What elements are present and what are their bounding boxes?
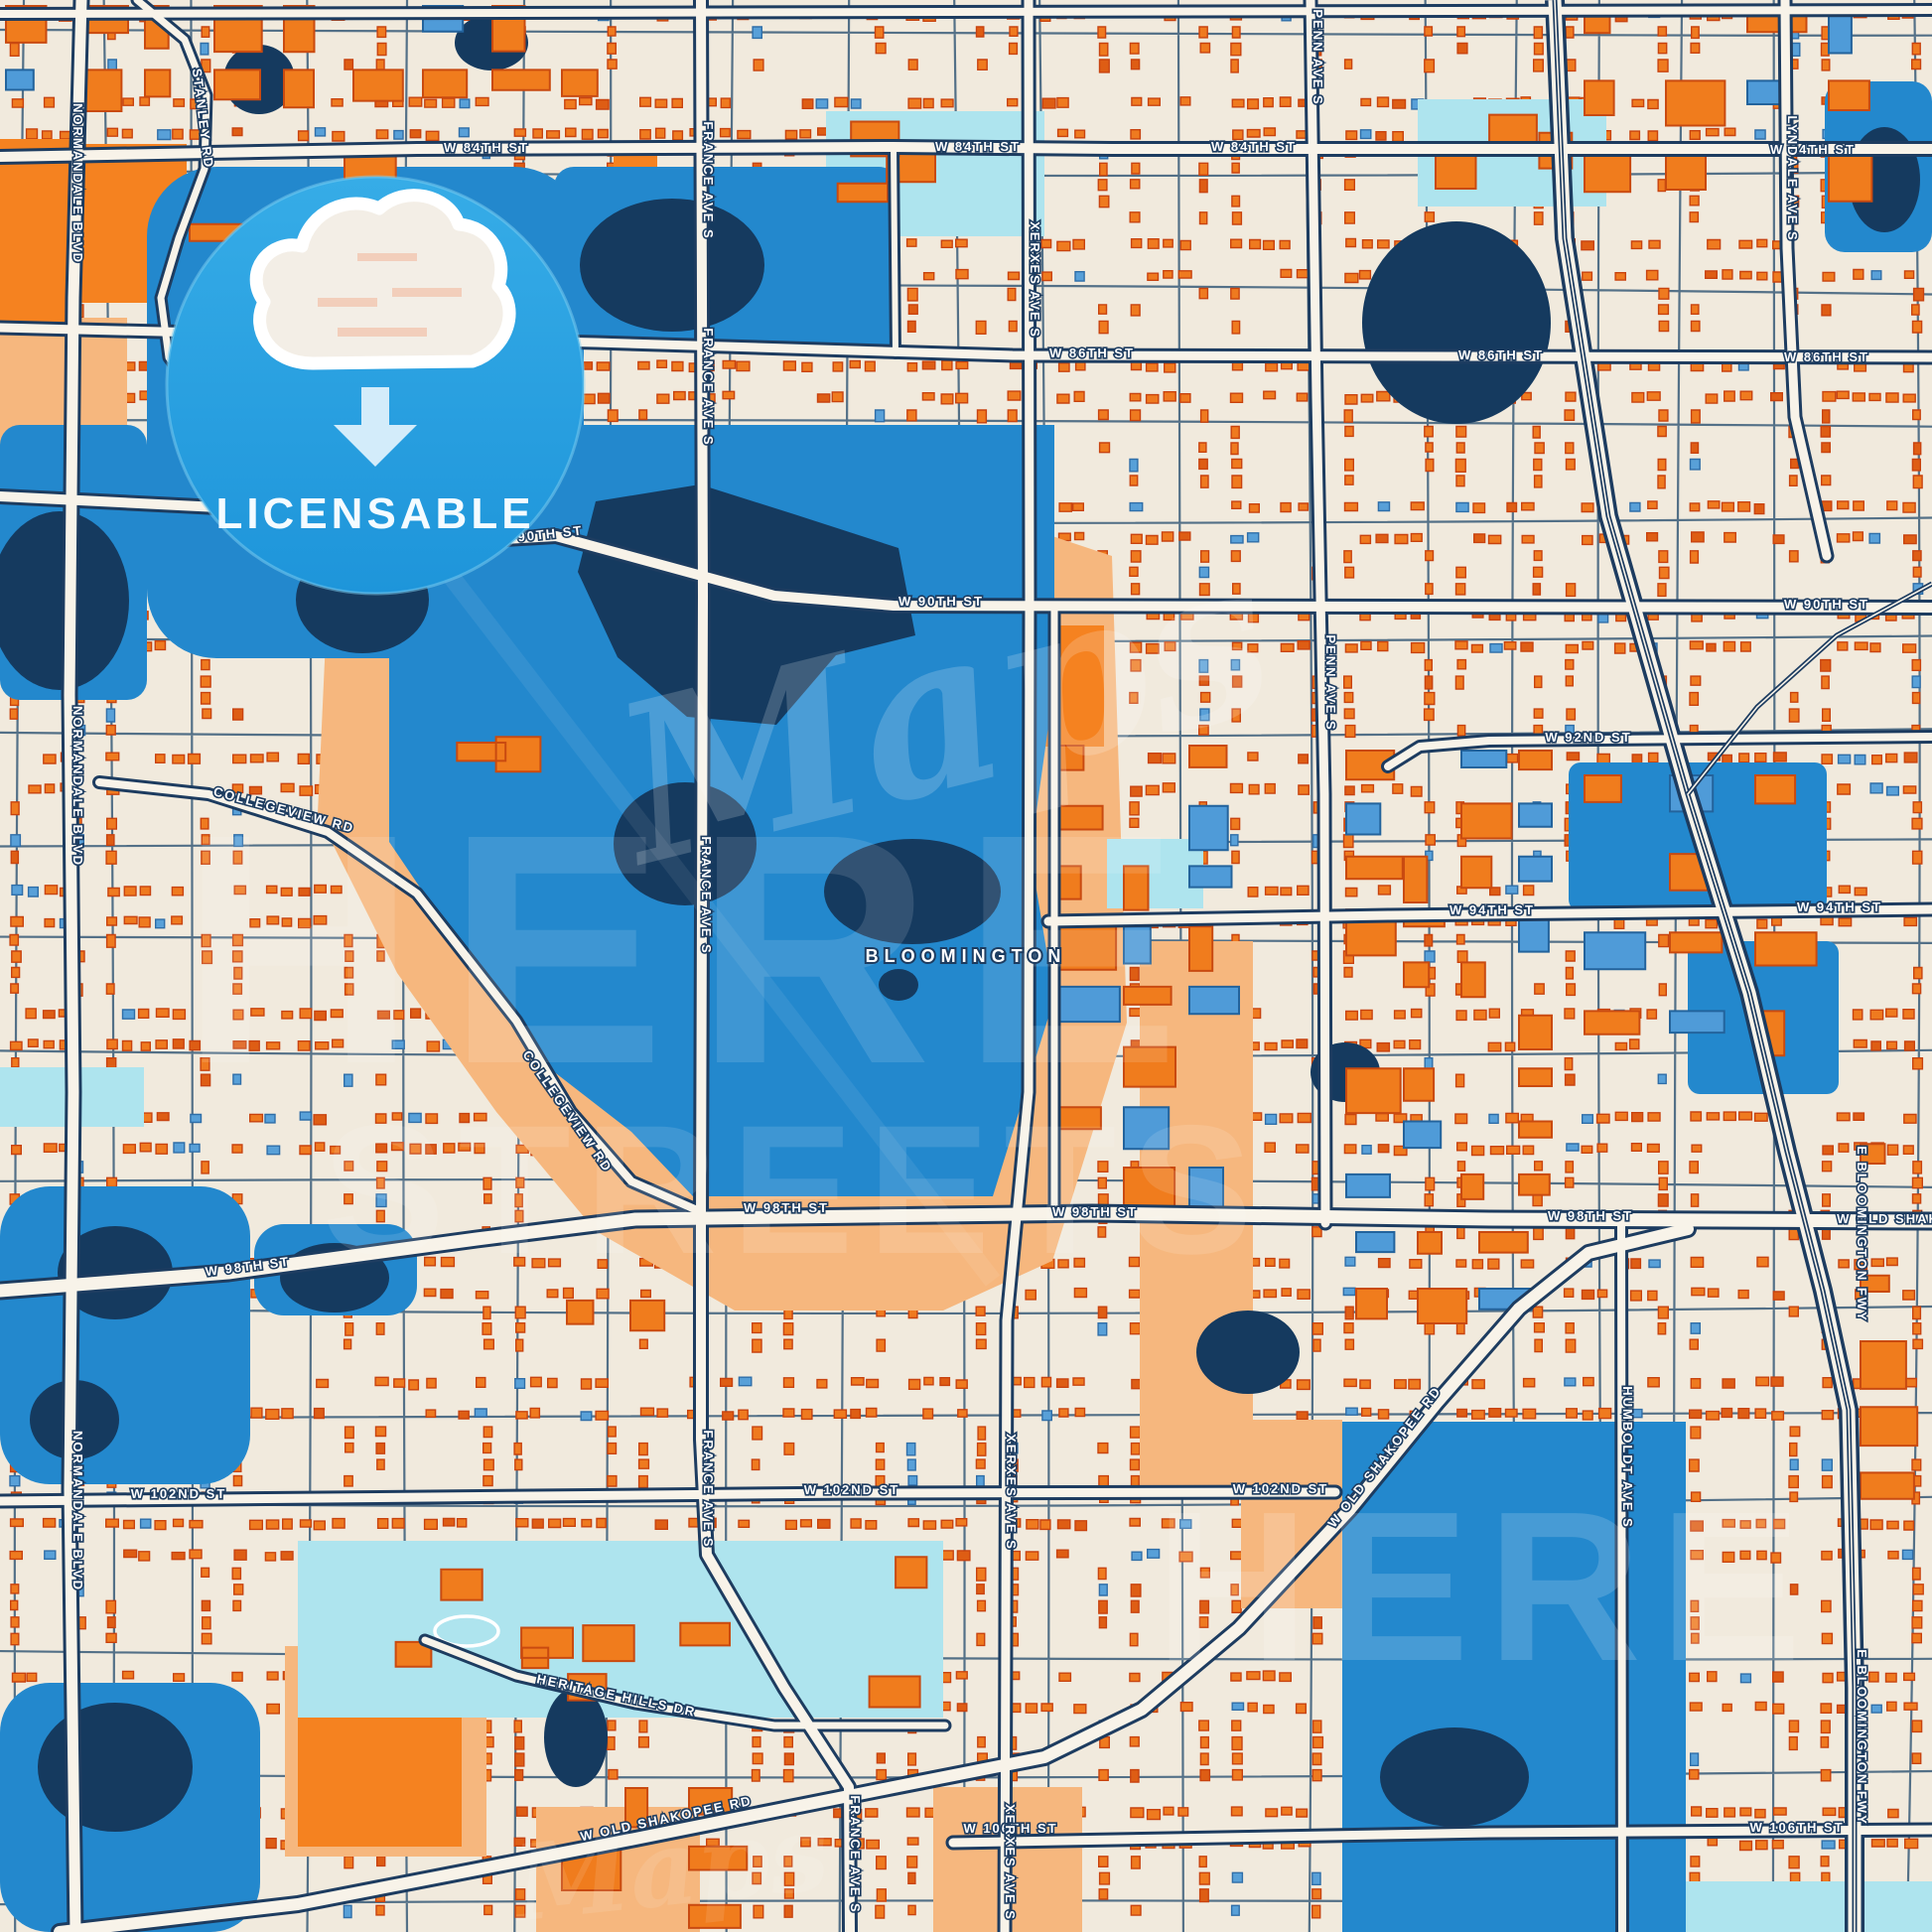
street-label: W 84TH ST bbox=[1211, 139, 1297, 154]
street-label: W 86TH ST bbox=[1784, 349, 1869, 364]
lake-water bbox=[1196, 1311, 1300, 1394]
street-label: PENN AVE S bbox=[1323, 634, 1338, 731]
street-label: W 84TH ST bbox=[1770, 142, 1856, 157]
street-label: W 84TH ST bbox=[444, 140, 529, 155]
street-label: W 90TH ST bbox=[898, 594, 984, 609]
street-label: W 102ND ST bbox=[131, 1486, 227, 1501]
street-label: W 98TH ST bbox=[1052, 1204, 1138, 1219]
lake-water bbox=[38, 1703, 193, 1832]
street-label: NORMANDALE BLVD bbox=[70, 1431, 85, 1591]
street-label: FRANCE AVE S bbox=[699, 836, 714, 954]
street-label: FRANCE AVE S bbox=[848, 1795, 863, 1913]
watermark-streets: STREETS bbox=[322, 1088, 1266, 1293]
lake-water bbox=[544, 1688, 608, 1787]
street-label: NORMANDALE BLVD bbox=[70, 103, 85, 264]
street-label: W 92ND ST bbox=[1545, 730, 1631, 745]
city-label: BLOOMINGTON bbox=[866, 946, 1067, 966]
badge-label: LICENSABLE bbox=[215, 489, 534, 538]
street-label: W 98TH ST bbox=[744, 1200, 829, 1215]
street-label: NORMANDALE BLVD bbox=[70, 706, 85, 867]
street-label: W 86TH ST bbox=[1458, 347, 1544, 362]
licensable-badge[interactable]: LICENSABLE bbox=[167, 177, 584, 594]
street-label: W 98TH ST bbox=[1548, 1208, 1633, 1223]
street-label: W 102ND ST bbox=[804, 1482, 900, 1497]
street-label: XERXES AVE S bbox=[1004, 1434, 1019, 1551]
lake-water bbox=[580, 199, 764, 332]
street-label: W 84TH ST bbox=[935, 139, 1021, 154]
street-label: XERXES AVE S bbox=[1028, 221, 1042, 339]
street-label: W OLD SHAK bbox=[1837, 1211, 1932, 1226]
street-label: W 102ND ST bbox=[1233, 1481, 1329, 1496]
street-label: E BLOOMINGTON FWY bbox=[1855, 1146, 1869, 1321]
street-label: W 86TH ST bbox=[1049, 345, 1135, 360]
street-label: LYNDALE AVE S bbox=[1785, 115, 1800, 241]
lake-water bbox=[1380, 1727, 1529, 1827]
map-stage[interactable]: Maps HERE STREETS HERE Maps BLOOMINGTON … bbox=[0, 0, 1932, 1932]
road-surface bbox=[894, 147, 896, 353]
street-label: FRANCE AVE S bbox=[701, 121, 716, 239]
watermark-here-bottom: HERE bbox=[1155, 1466, 1819, 1706]
street-label: W 90TH ST bbox=[1784, 597, 1869, 612]
street-label: FRANCE AVE S bbox=[701, 1430, 716, 1548]
street-label: W 106TH ST bbox=[1749, 1820, 1844, 1835]
street-label: HUMBOLDT AVE S bbox=[1620, 1386, 1635, 1529]
map-canvas[interactable]: Maps HERE STREETS HERE Maps BLOOMINGTON … bbox=[0, 0, 1932, 1932]
cyan-zone bbox=[1678, 1881, 1932, 1932]
street-label: E BLOOMINGTON FWY bbox=[1855, 1649, 1869, 1825]
street-label: PENN AVE S bbox=[1311, 9, 1325, 105]
street-label: XERXES AVE S bbox=[1003, 1804, 1018, 1921]
street-label: W 94TH ST bbox=[1797, 899, 1882, 914]
road-surface bbox=[0, 10, 1932, 14]
street-label: W 94TH ST bbox=[1449, 902, 1535, 917]
street-label: FRANCE AVE S bbox=[701, 328, 716, 446]
lake-water bbox=[1362, 221, 1551, 424]
